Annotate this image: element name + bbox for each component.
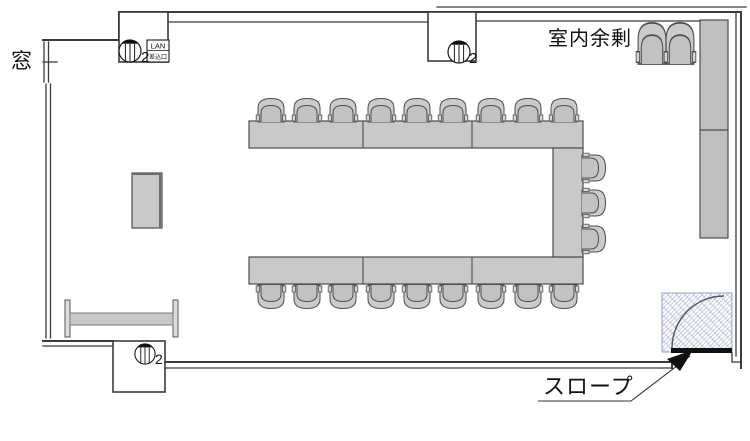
- chair-icon: [292, 285, 322, 309]
- outlet-count-label: 2: [469, 50, 477, 67]
- lan-box-label-2: 差込口: [149, 53, 167, 61]
- chair-icon: [513, 99, 543, 123]
- ramp-label: スロープ: [543, 374, 634, 399]
- wall-column: [700, 20, 728, 238]
- folding-board: [65, 300, 178, 337]
- chair-icon: [292, 99, 322, 123]
- chair-icon: [582, 188, 606, 218]
- table-bottom-row: [249, 257, 583, 284]
- floor-plan-canvas: LAN 差込口 2 2 2 窓 室内余剰 スロープ: [0, 0, 750, 441]
- lan-port-box: LAN 差込口: [147, 40, 169, 62]
- outlet-count-label: 2: [141, 49, 149, 66]
- power-outlet-icon: [448, 41, 470, 63]
- power-outlet-icon: [135, 344, 155, 364]
- chairs-bottom-row: [256, 285, 579, 309]
- table-top-row: [249, 121, 583, 148]
- chair-icon: [438, 99, 468, 123]
- window-wall: [43, 42, 57, 338]
- chair-icon: [402, 285, 432, 309]
- chair-icon: [328, 285, 358, 309]
- chair-icon: [582, 153, 606, 183]
- chair-icon: [513, 285, 543, 309]
- stacked-spare-chairs: [636, 23, 696, 64]
- chairs-top-row: [256, 99, 579, 123]
- entrance-area: [662, 293, 732, 353]
- chair-icon: [549, 99, 579, 123]
- table-right-side: [553, 148, 583, 257]
- chair-icon: [636, 23, 668, 64]
- chair-icon: [256, 99, 286, 123]
- chair-icon: [328, 99, 358, 123]
- chair-icon: [402, 99, 432, 123]
- lan-box-label-1: LAN: [151, 42, 166, 51]
- side-table: [132, 173, 162, 228]
- chair-icon: [366, 285, 396, 309]
- outlet-count-label: 2: [155, 351, 163, 367]
- chair-icon: [549, 285, 579, 309]
- floor-plan-drawing: LAN 差込口 2 2 2 窓 室内余剰 スロープ: [0, 0, 750, 441]
- door-leaf: [671, 348, 732, 353]
- chair-icon: [438, 285, 468, 309]
- chair-icon: [664, 23, 696, 64]
- conference-table: [249, 121, 583, 284]
- chair-icon: [256, 285, 286, 309]
- power-outlet-icon: [119, 40, 141, 62]
- chair-icon: [582, 224, 606, 254]
- chairs-right-side: [582, 153, 606, 254]
- chair-icon: [366, 99, 396, 123]
- chair-icon: [476, 285, 506, 309]
- window-label: 窓: [11, 50, 32, 73]
- chair-icon: [476, 99, 506, 123]
- room-surplus-label: 室内余剰: [548, 27, 632, 50]
